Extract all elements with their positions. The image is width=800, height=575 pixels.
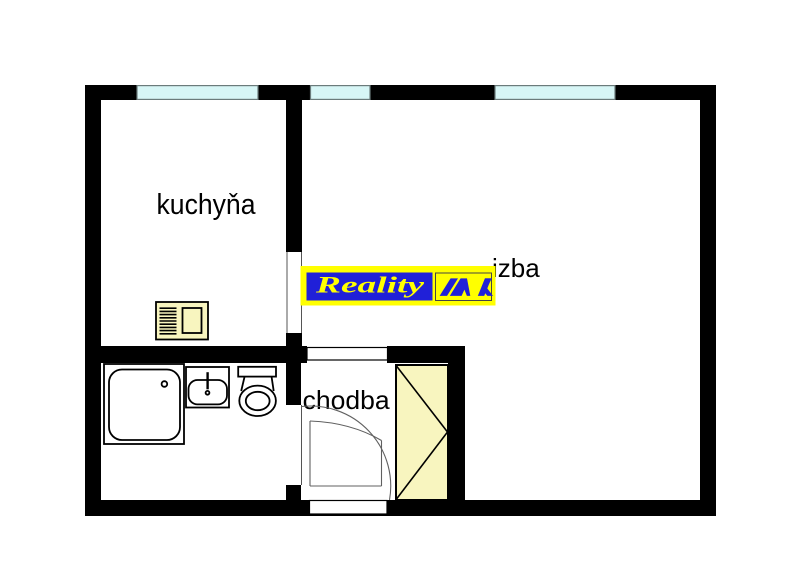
svg-text:kuchyňa: kuchyňa xyxy=(157,189,257,221)
svg-text:Reality: Reality xyxy=(314,272,425,297)
svg-text:chodba: chodba xyxy=(303,385,391,415)
svg-text:izba: izba xyxy=(492,253,540,283)
